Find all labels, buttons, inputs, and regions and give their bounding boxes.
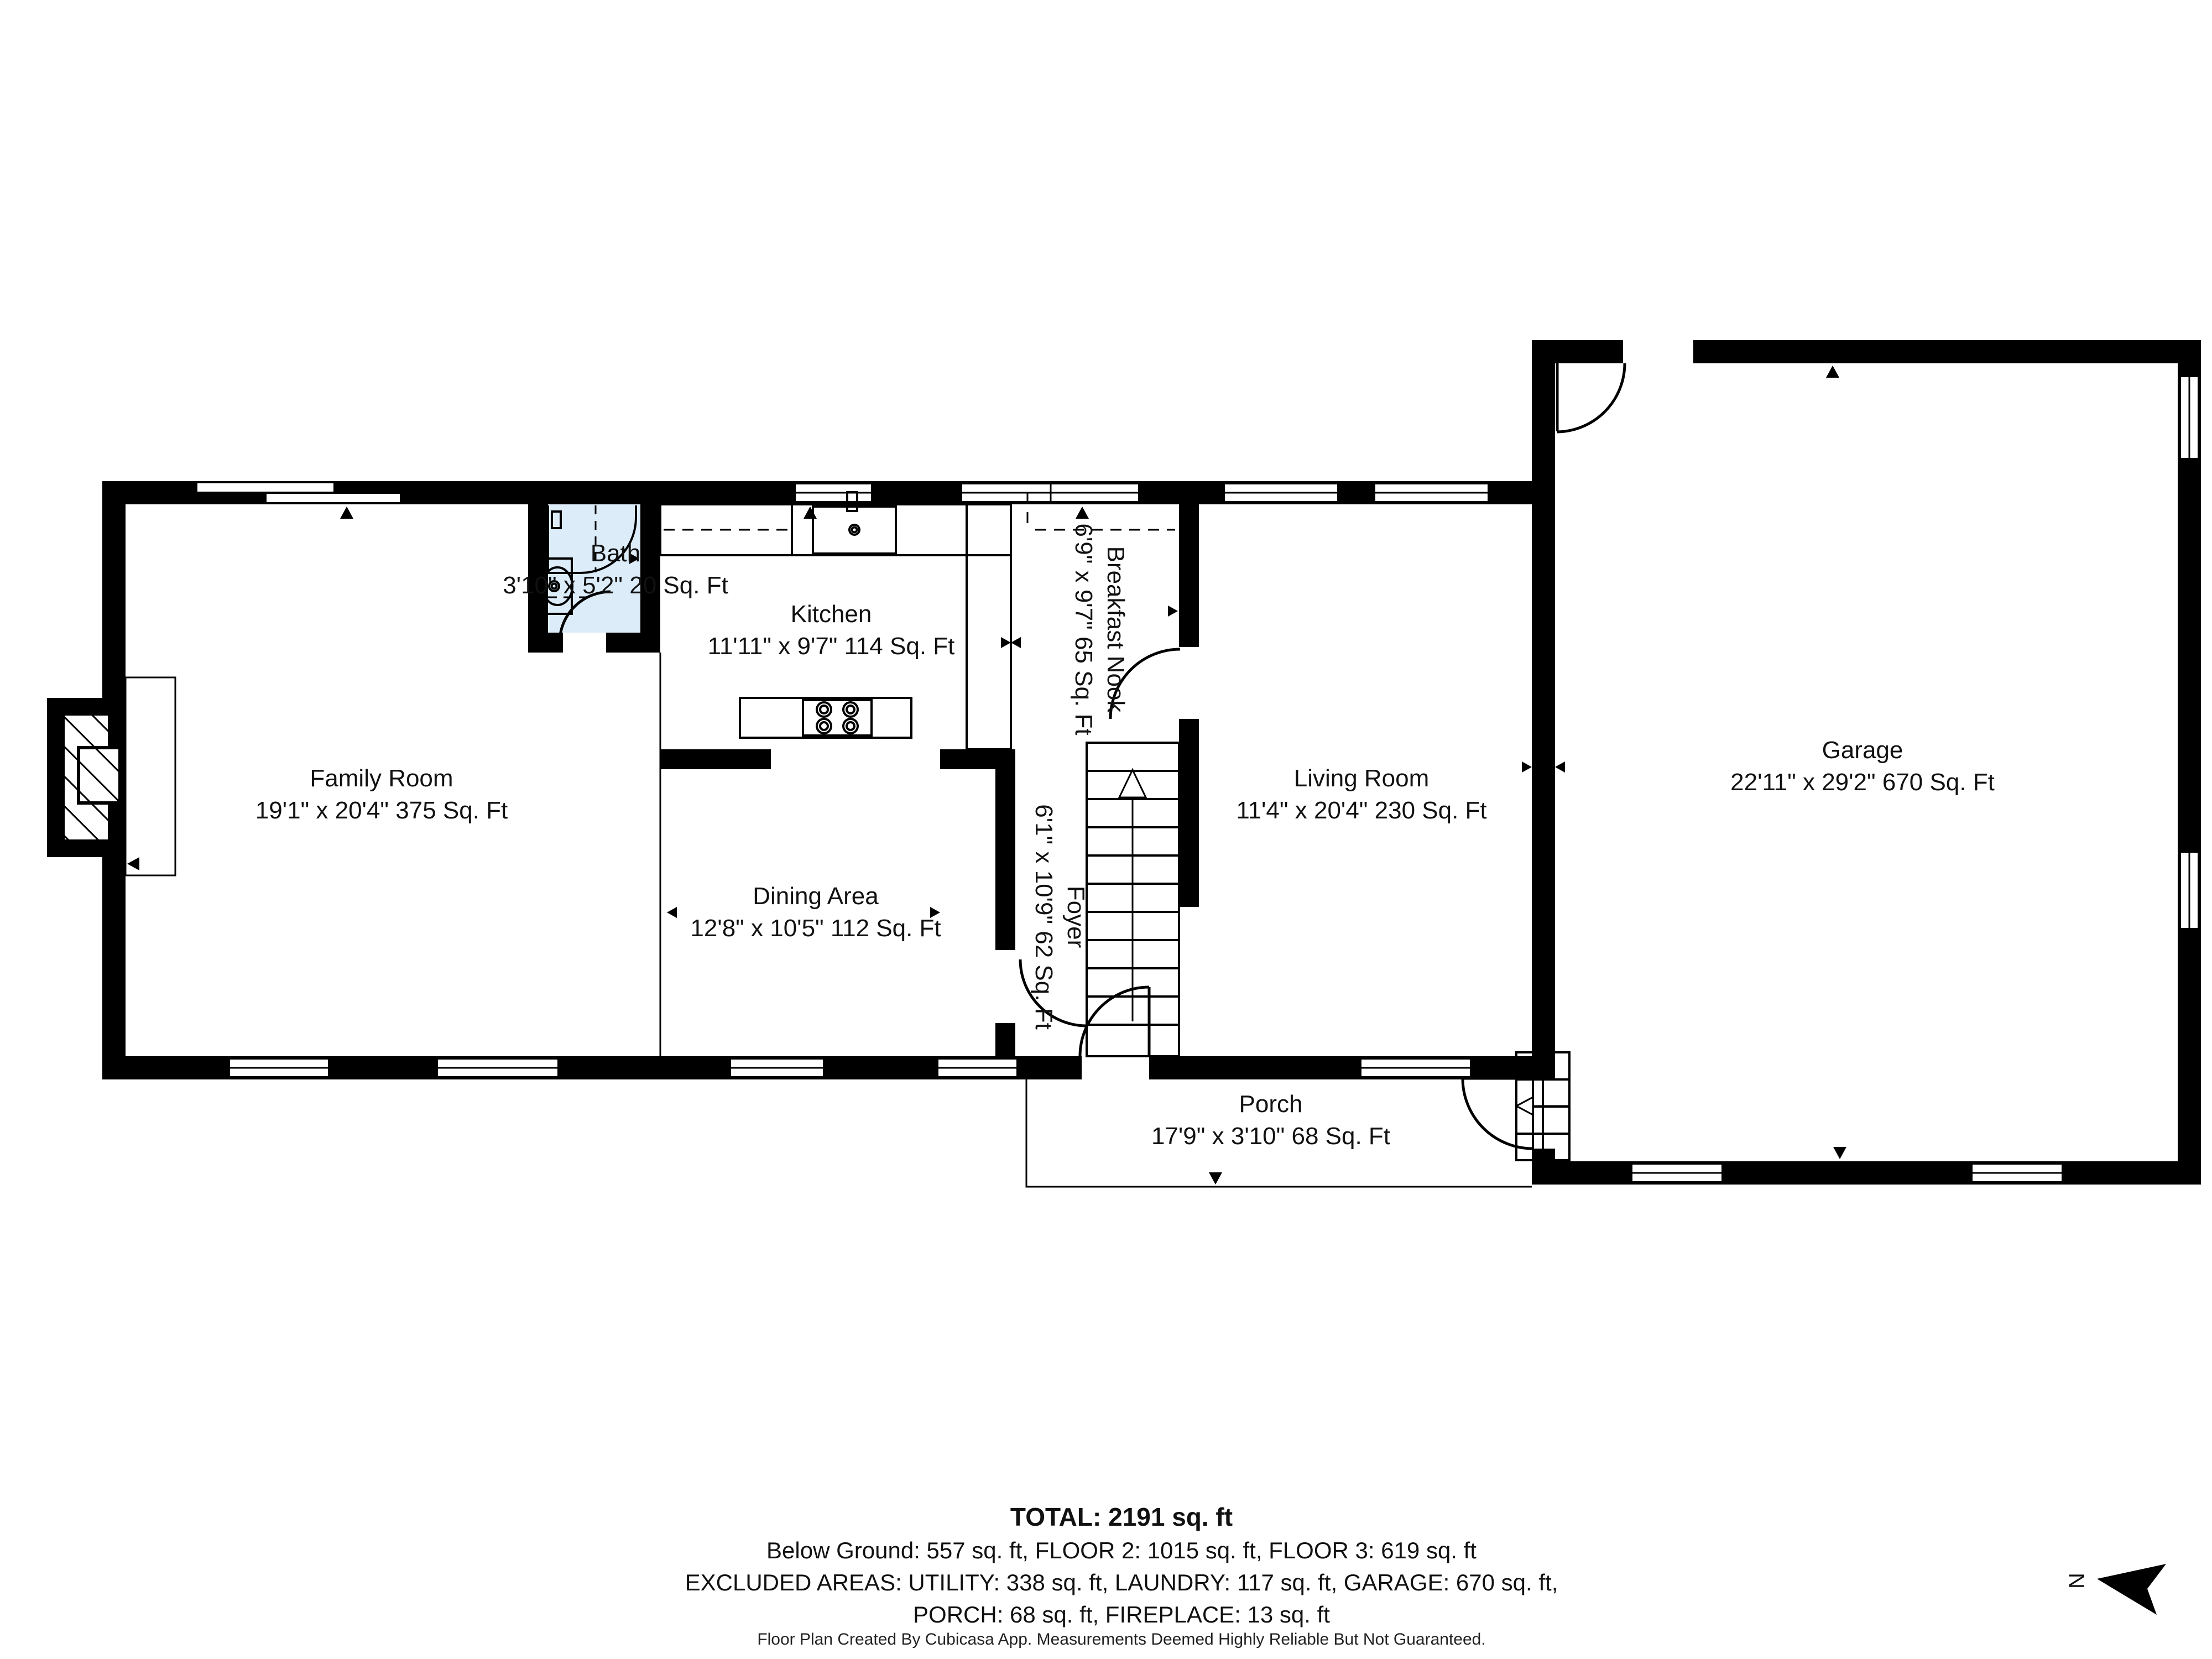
room-dims: 3'10" x 5'2" 20 Sq. Ft — [503, 570, 728, 602]
area-summary: TOTAL: 2191 sq. ft Below Ground: 557 sq.… — [685, 1500, 1558, 1631]
room-label-dining-area: Dining Area 12'8" x 10'5" 112 Sq. Ft — [690, 880, 941, 945]
room-dims: 11'11" x 9'7" 114 Sq. Ft — [708, 630, 955, 662]
room-label-garage: Garage 22'11" x 29'2" 670 Sq. Ft — [1730, 734, 1995, 799]
room-name: Garage — [1730, 734, 1995, 766]
room-label-porch: Porch 17'9" x 3'10" 68 Sq. Ft — [1151, 1088, 1390, 1152]
room-name: Porch — [1151, 1088, 1390, 1120]
summary-line-floors: Below Ground: 557 sq. ft, FLOOR 2: 1015 … — [685, 1535, 1558, 1567]
summary-line-porch-fireplace: PORCH: 68 sq. ft, FIREPLACE: 13 sq. ft — [685, 1599, 1558, 1631]
room-label-kitchen: Kitchen 11'11" x 9'7" 114 Sq. Ft — [708, 598, 955, 662]
north-arrow-icon — [2097, 1564, 2166, 1615]
room-dims: 12'8" x 10'5" 112 Sq. Ft — [690, 912, 941, 945]
room-name: Breakfast Nook — [1099, 523, 1131, 735]
room-dims: 19'1" x 20'4" 375 Sq. Ft — [255, 795, 508, 827]
summary-line-excluded: EXCLUDED AREAS: UTILITY: 338 sq. ft, LAU… — [685, 1567, 1558, 1599]
room-dims: 22'11" x 29'2" 670 Sq. Ft — [1730, 766, 1995, 799]
room-name: Dining Area — [690, 880, 941, 912]
room-name: Foyer — [1060, 804, 1092, 1030]
room-label-bath: Bath 3'10" x 5'2" 20 Sq. Ft — [503, 538, 728, 602]
stairs-foyer — [1087, 743, 1179, 1056]
room-name: Family Room — [255, 763, 508, 795]
room-label-foyer: Foyer 6'1" x 10'9" 62 Sq. Ft — [1027, 804, 1092, 1030]
room-dims: 6'9" x 9'7" 65 Sq. Ft — [1067, 523, 1099, 735]
compass-north-label: N — [2065, 1573, 2090, 1589]
room-name: Living Room — [1236, 763, 1486, 795]
disclaimer-text: Floor Plan Created By Cubicasa App. Meas… — [757, 1630, 1485, 1649]
floorplan-canvas — [0, 0, 2212, 1659]
summary-total: TOTAL: 2191 sq. ft — [685, 1500, 1558, 1535]
room-name: Kitchen — [708, 598, 955, 630]
room-label-family-room: Family Room 19'1" x 20'4" 375 Sq. Ft — [255, 763, 508, 827]
room-label-living-room: Living Room 11'4" x 20'4" 230 Sq. Ft — [1236, 763, 1486, 827]
room-dims: 11'4" x 20'4" 230 Sq. Ft — [1236, 795, 1486, 827]
room-name: Bath — [503, 538, 728, 570]
room-dims: 17'9" x 3'10" 68 Sq. Ft — [1151, 1120, 1390, 1152]
room-dims: 6'1" x 10'9" 62 Sq. Ft — [1027, 804, 1060, 1030]
room-label-breakfast-nook: Breakfast Nook 6'9" x 9'7" 65 Sq. Ft — [1067, 523, 1131, 735]
